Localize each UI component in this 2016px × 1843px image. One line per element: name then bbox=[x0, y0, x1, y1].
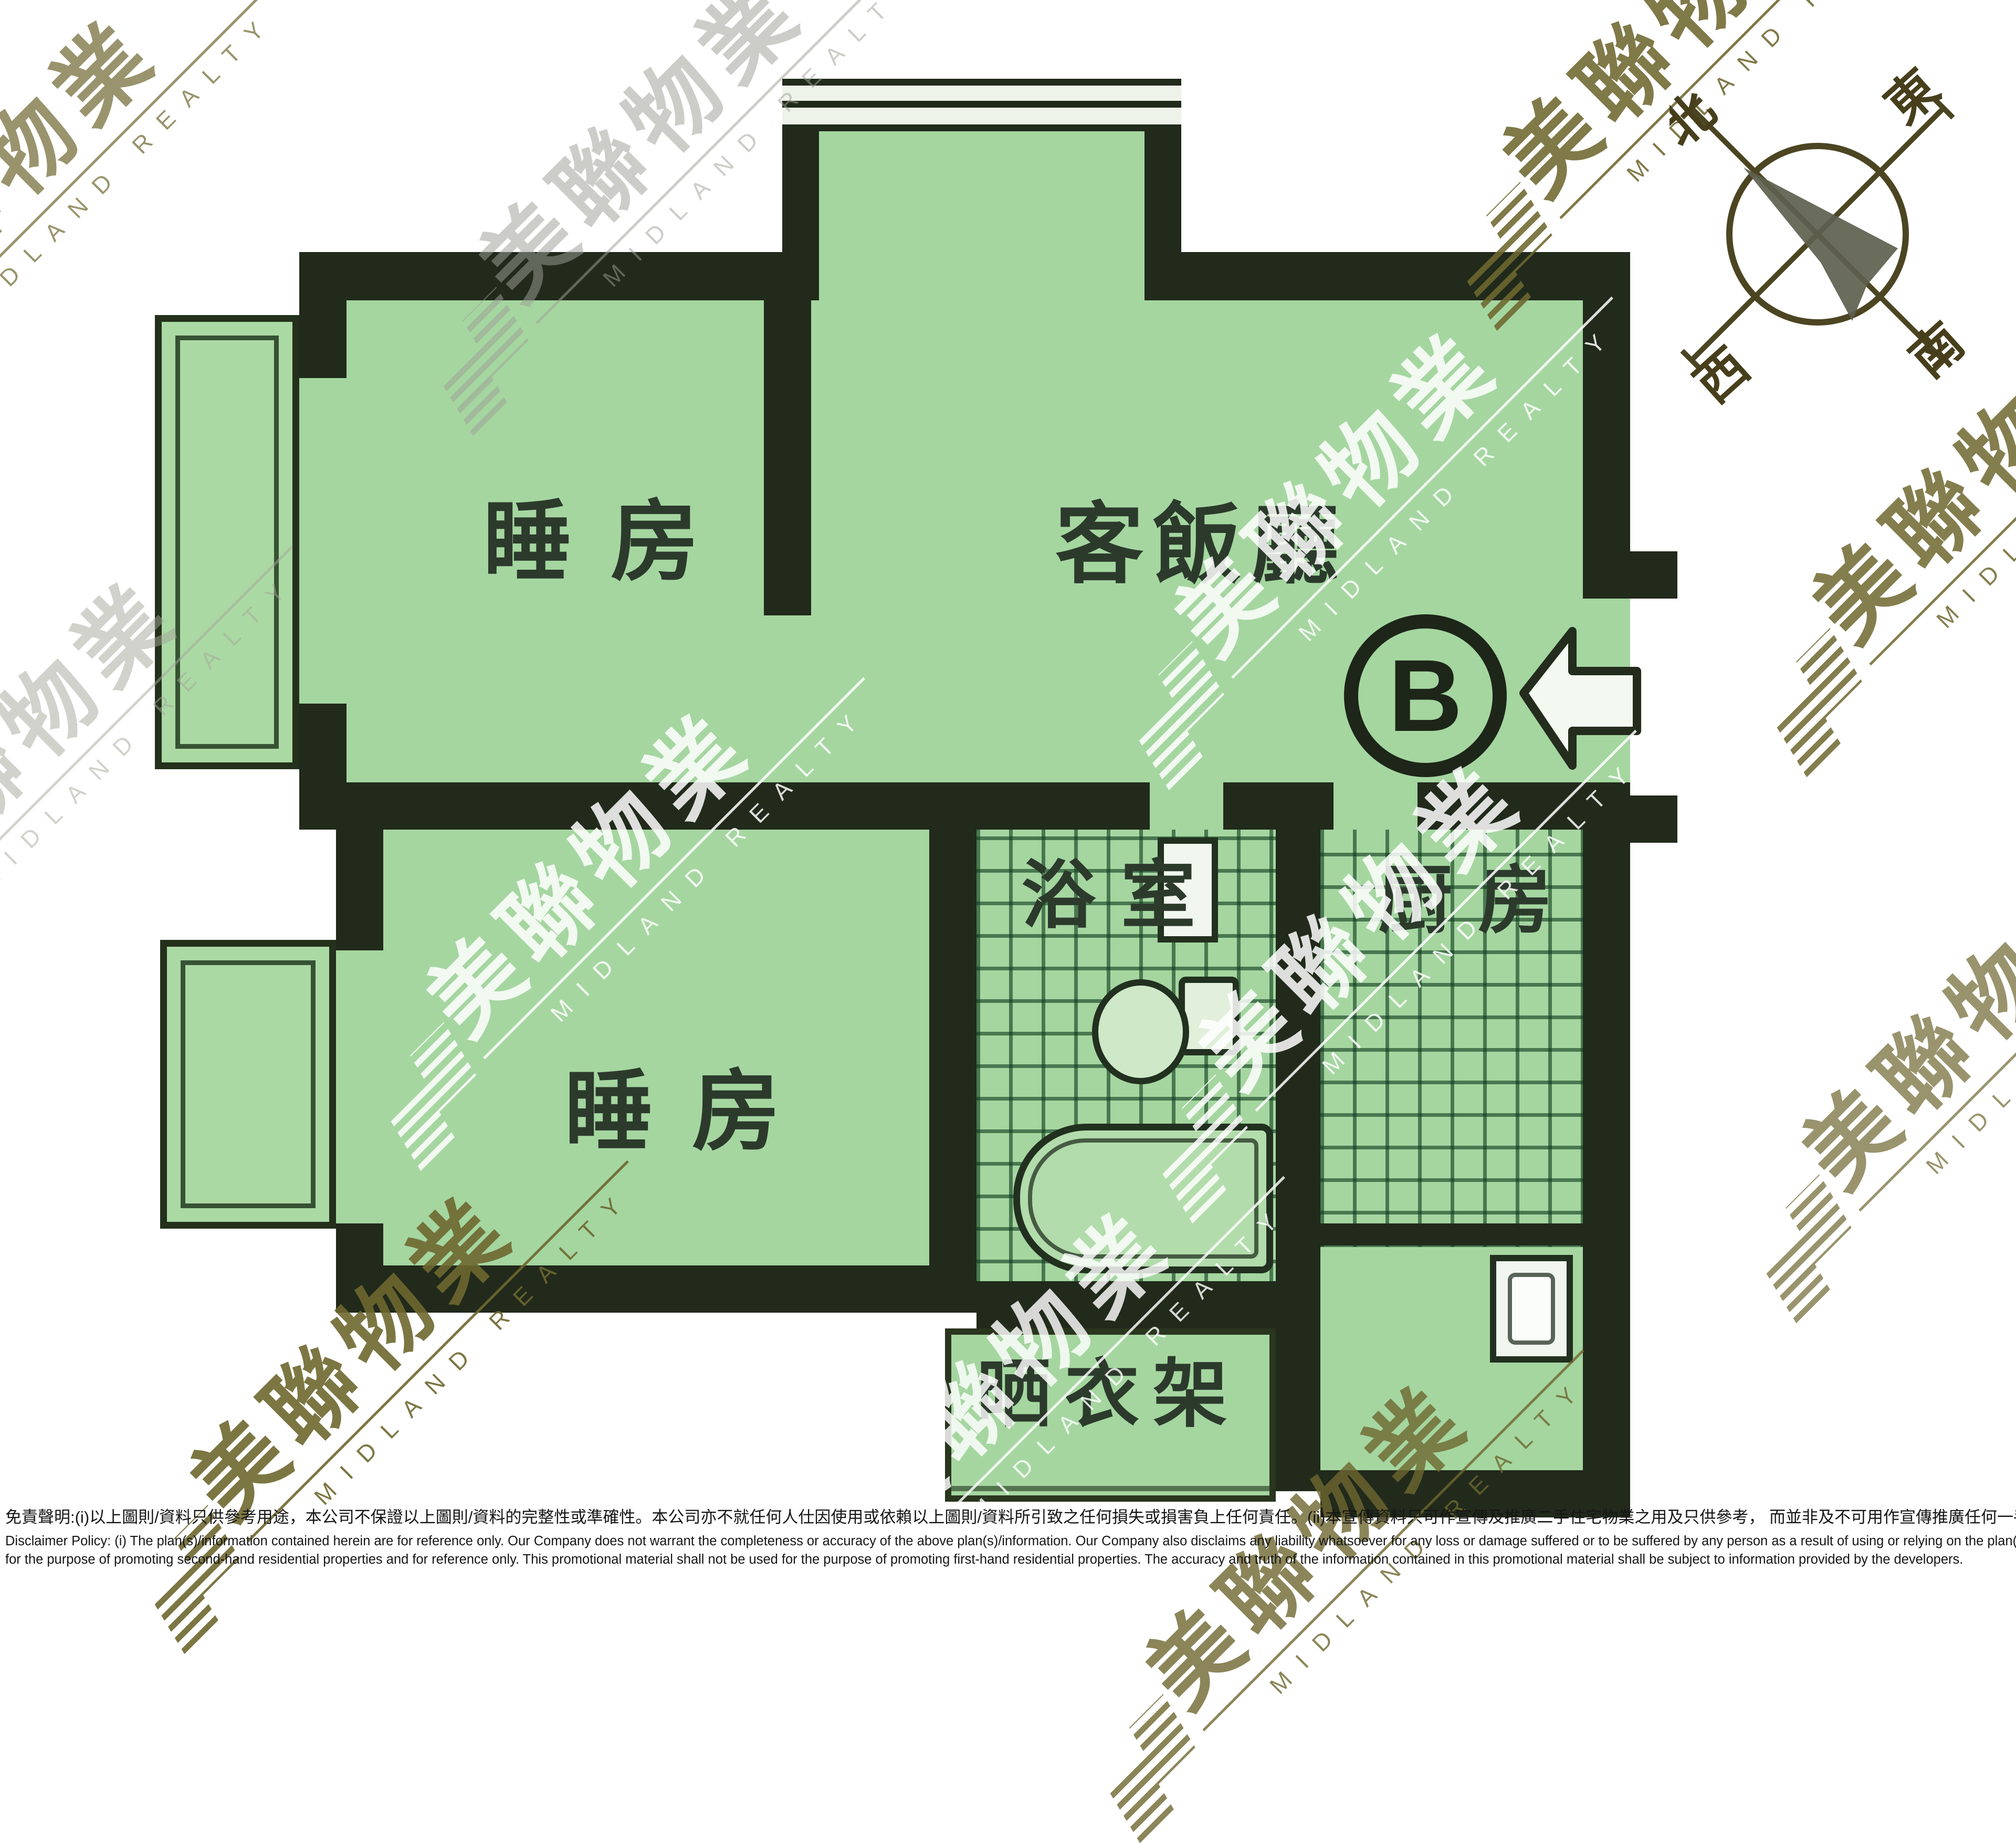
watermark-latin: MIDLAND REALTY bbox=[1865, 851, 2016, 1235]
watermark-cjk: 美聯物業 bbox=[1789, 774, 2016, 1204]
bedroom1-bay-window bbox=[155, 315, 299, 769]
watermark-rule bbox=[1858, 830, 2016, 1212]
compass-east-label: 東 bbox=[1875, 59, 1950, 135]
bathroom-label: 浴室 bbox=[1021, 858, 1221, 933]
wall-segment bbox=[299, 252, 346, 378]
wall-segment bbox=[1144, 252, 1630, 300]
midland-logo-icon bbox=[1759, 628, 1877, 778]
bedroom1-label: 睡房 bbox=[483, 499, 738, 587]
wall-segment bbox=[764, 300, 811, 615]
midland-logo-icon bbox=[1749, 1174, 1867, 1324]
bay-window-glazing bbox=[782, 79, 1181, 131]
wall-segment bbox=[976, 1281, 1320, 1328]
watermark-rule bbox=[0, 0, 272, 366]
bathtub bbox=[1013, 1124, 1273, 1273]
bedroom2-bay-window bbox=[160, 940, 336, 1229]
bedroom2-label: 睡房 bbox=[564, 1069, 820, 1157]
compass-west-label: 西 bbox=[1685, 338, 1760, 414]
disclaimer-english-line2: for the purpose of promoting second-hand… bbox=[5, 1552, 2011, 1567]
entrance-arrow-icon bbox=[1517, 599, 1643, 803]
midland-logo-icon bbox=[1093, 1694, 1211, 1843]
toilet-bowl bbox=[1092, 979, 1189, 1084]
living-dining-label: 客飯廳 bbox=[1055, 501, 1348, 590]
wall-segment bbox=[1583, 300, 1630, 551]
compass-north-label: 北 bbox=[1669, 82, 1726, 158]
floor-plan-page: { "plan": { "unit_label": "B", "rooms": … bbox=[0, 0, 2016, 1570]
kitchen-label: 厨房 bbox=[1378, 864, 1578, 938]
wall-segment bbox=[1583, 795, 1630, 1517]
kitchen-counter-line bbox=[1320, 1223, 1585, 1245]
kitchen-sink bbox=[1490, 1255, 1573, 1363]
wall-segment bbox=[1276, 830, 1320, 1491]
unit-b-letter: B bbox=[1389, 637, 1463, 755]
unit-b-badge: B bbox=[1344, 614, 1507, 777]
compass-rose: 北 東 西 南 bbox=[1669, 53, 2005, 420]
disclaimer-chinese: 免責聲明:(i)以上圖則/資料只供參考用途，本公司不保證以上圖則/資料的完整性或… bbox=[5, 1504, 2011, 1527]
wall-segment bbox=[336, 830, 383, 950]
wall-segment bbox=[299, 782, 1150, 830]
wall-segment bbox=[1223, 782, 1333, 830]
wall-segment bbox=[336, 1265, 976, 1313]
drying-rack-label: 晒衣架 bbox=[976, 1357, 1241, 1432]
wall-segment bbox=[929, 830, 976, 1292]
disclaimer-english-line1: Disclaimer Policy: (i) The plan(s)/infor… bbox=[5, 1534, 2011, 1549]
entrance-jamb bbox=[1583, 551, 1677, 599]
wall-segment bbox=[299, 252, 819, 300]
watermark-cjk: 美聯物業 bbox=[0, 0, 249, 359]
top-bay-window-area bbox=[819, 131, 1144, 300]
